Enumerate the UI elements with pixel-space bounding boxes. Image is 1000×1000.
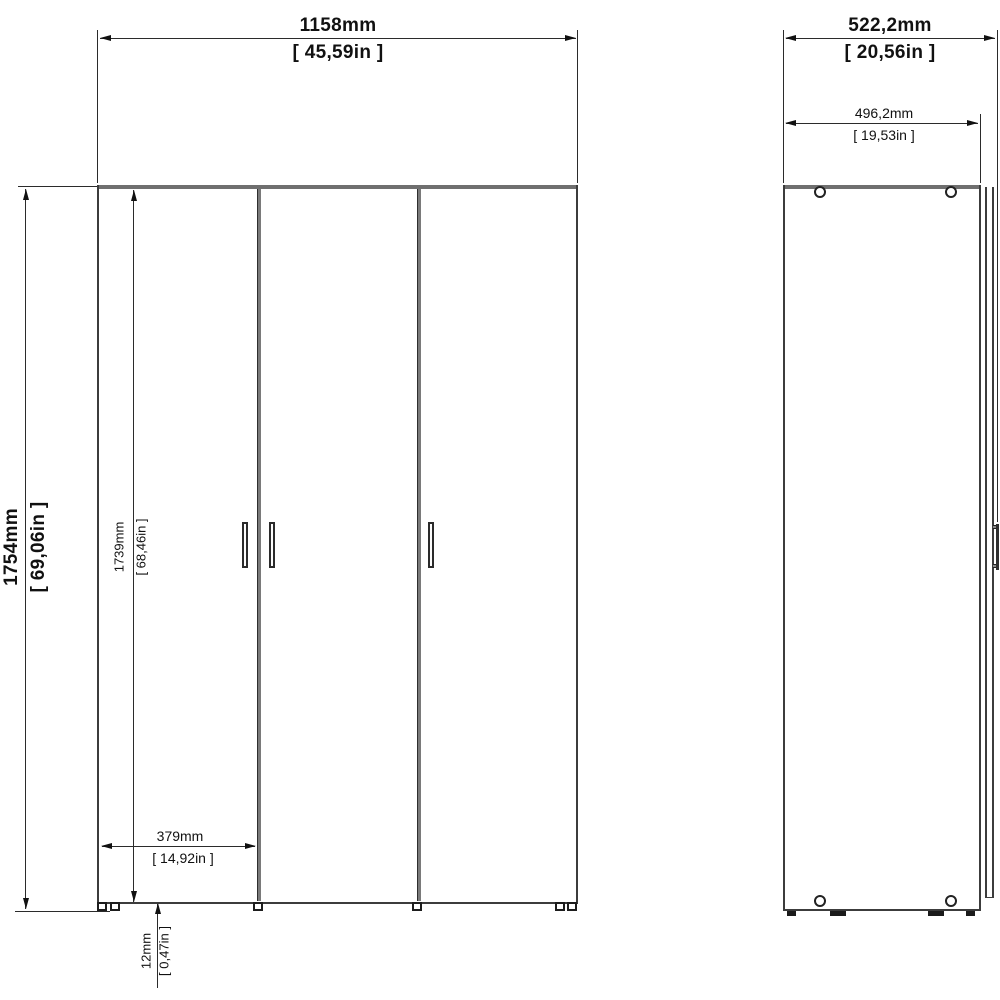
dim-arrow-left-icon — [100, 35, 111, 41]
door-handle-middle — [269, 522, 275, 568]
side-view-body — [783, 185, 981, 911]
technical-drawing-canvas: 1158mm [ 45,59in ] 1754mm [ 69,06in ] 17… — [0, 0, 1000, 1000]
dim-arrow-up-icon — [155, 903, 161, 914]
side-door-profile — [985, 187, 994, 898]
front-height-label-in: [ 69,06in ] — [28, 502, 50, 593]
extension-line — [997, 30, 998, 522]
extension-line-floor — [15, 911, 110, 912]
dimension-line — [100, 38, 576, 39]
dimension-line — [25, 189, 26, 909]
front-height-label-mm: 1754mm — [1, 508, 23, 586]
depth-total-label-mm: 522,2mm — [848, 15, 931, 37]
front-foot-1 — [97, 902, 107, 911]
bottom-gap-label-mm: 12mm — [140, 933, 155, 969]
dim-arrow-up-icon — [131, 190, 137, 201]
cam-hole-bottom-left — [814, 895, 826, 907]
dim-arrow-down-icon — [131, 891, 137, 902]
front-foot-4 — [412, 902, 422, 911]
front-door-divider-right — [417, 189, 421, 901]
dimension-line — [102, 846, 255, 847]
cam-hole-top-right — [945, 186, 957, 198]
cam-hole-top-left — [814, 186, 826, 198]
door-height-label-in: [ 68,46in ] — [135, 518, 150, 575]
dim-arrow-right-icon — [984, 35, 995, 41]
front-foot-3 — [253, 902, 263, 911]
side-foot-3 — [928, 911, 944, 916]
door-handle-right — [428, 522, 434, 568]
extension-line — [577, 30, 578, 183]
dim-arrow-right-icon — [245, 843, 256, 849]
front-view-body — [97, 185, 578, 904]
front-width-label-in: [ 45,59in ] — [293, 42, 384, 64]
door-width-label-in: [ 14,92in ] — [152, 850, 214, 866]
front-foot-6 — [567, 902, 577, 911]
front-door-divider-left — [257, 189, 261, 901]
front-view-top-edge — [99, 185, 576, 189]
dim-arrow-left-icon — [785, 120, 796, 126]
depth-carcass-label-in: [ 19,53in ] — [853, 127, 915, 143]
dimension-line — [786, 38, 995, 39]
door-width-label-mm: 379mm — [157, 828, 204, 844]
side-foot-4 — [966, 911, 975, 916]
depth-carcass-label-mm: 496,2mm — [855, 105, 913, 121]
front-foot-2 — [110, 902, 120, 911]
dimension-line — [786, 123, 978, 124]
depth-total-label-in: [ 20,56in ] — [845, 42, 936, 64]
extension-line — [783, 30, 784, 183]
side-foot-1 — [787, 911, 796, 916]
dim-arrow-right-icon — [565, 35, 576, 41]
front-foot-5 — [555, 902, 565, 911]
dim-arrow-left-icon — [101, 843, 112, 849]
door-handle-left — [242, 522, 248, 568]
dim-arrow-down-icon — [23, 898, 29, 909]
extension-line — [97, 30, 98, 183]
dim-arrow-right-icon — [967, 120, 978, 126]
bottom-gap-label-in: [ 0,47in ] — [158, 926, 173, 976]
side-handle-bar — [996, 524, 999, 570]
side-foot-2 — [830, 911, 846, 916]
extension-line — [980, 114, 981, 183]
front-width-label-mm: 1158mm — [300, 15, 377, 37]
extension-line — [18, 186, 97, 187]
door-height-label-mm: 1739mm — [113, 522, 128, 573]
dim-arrow-up-icon — [23, 189, 29, 200]
cam-hole-bottom-right — [945, 895, 957, 907]
dim-arrow-left-icon — [785, 35, 796, 41]
